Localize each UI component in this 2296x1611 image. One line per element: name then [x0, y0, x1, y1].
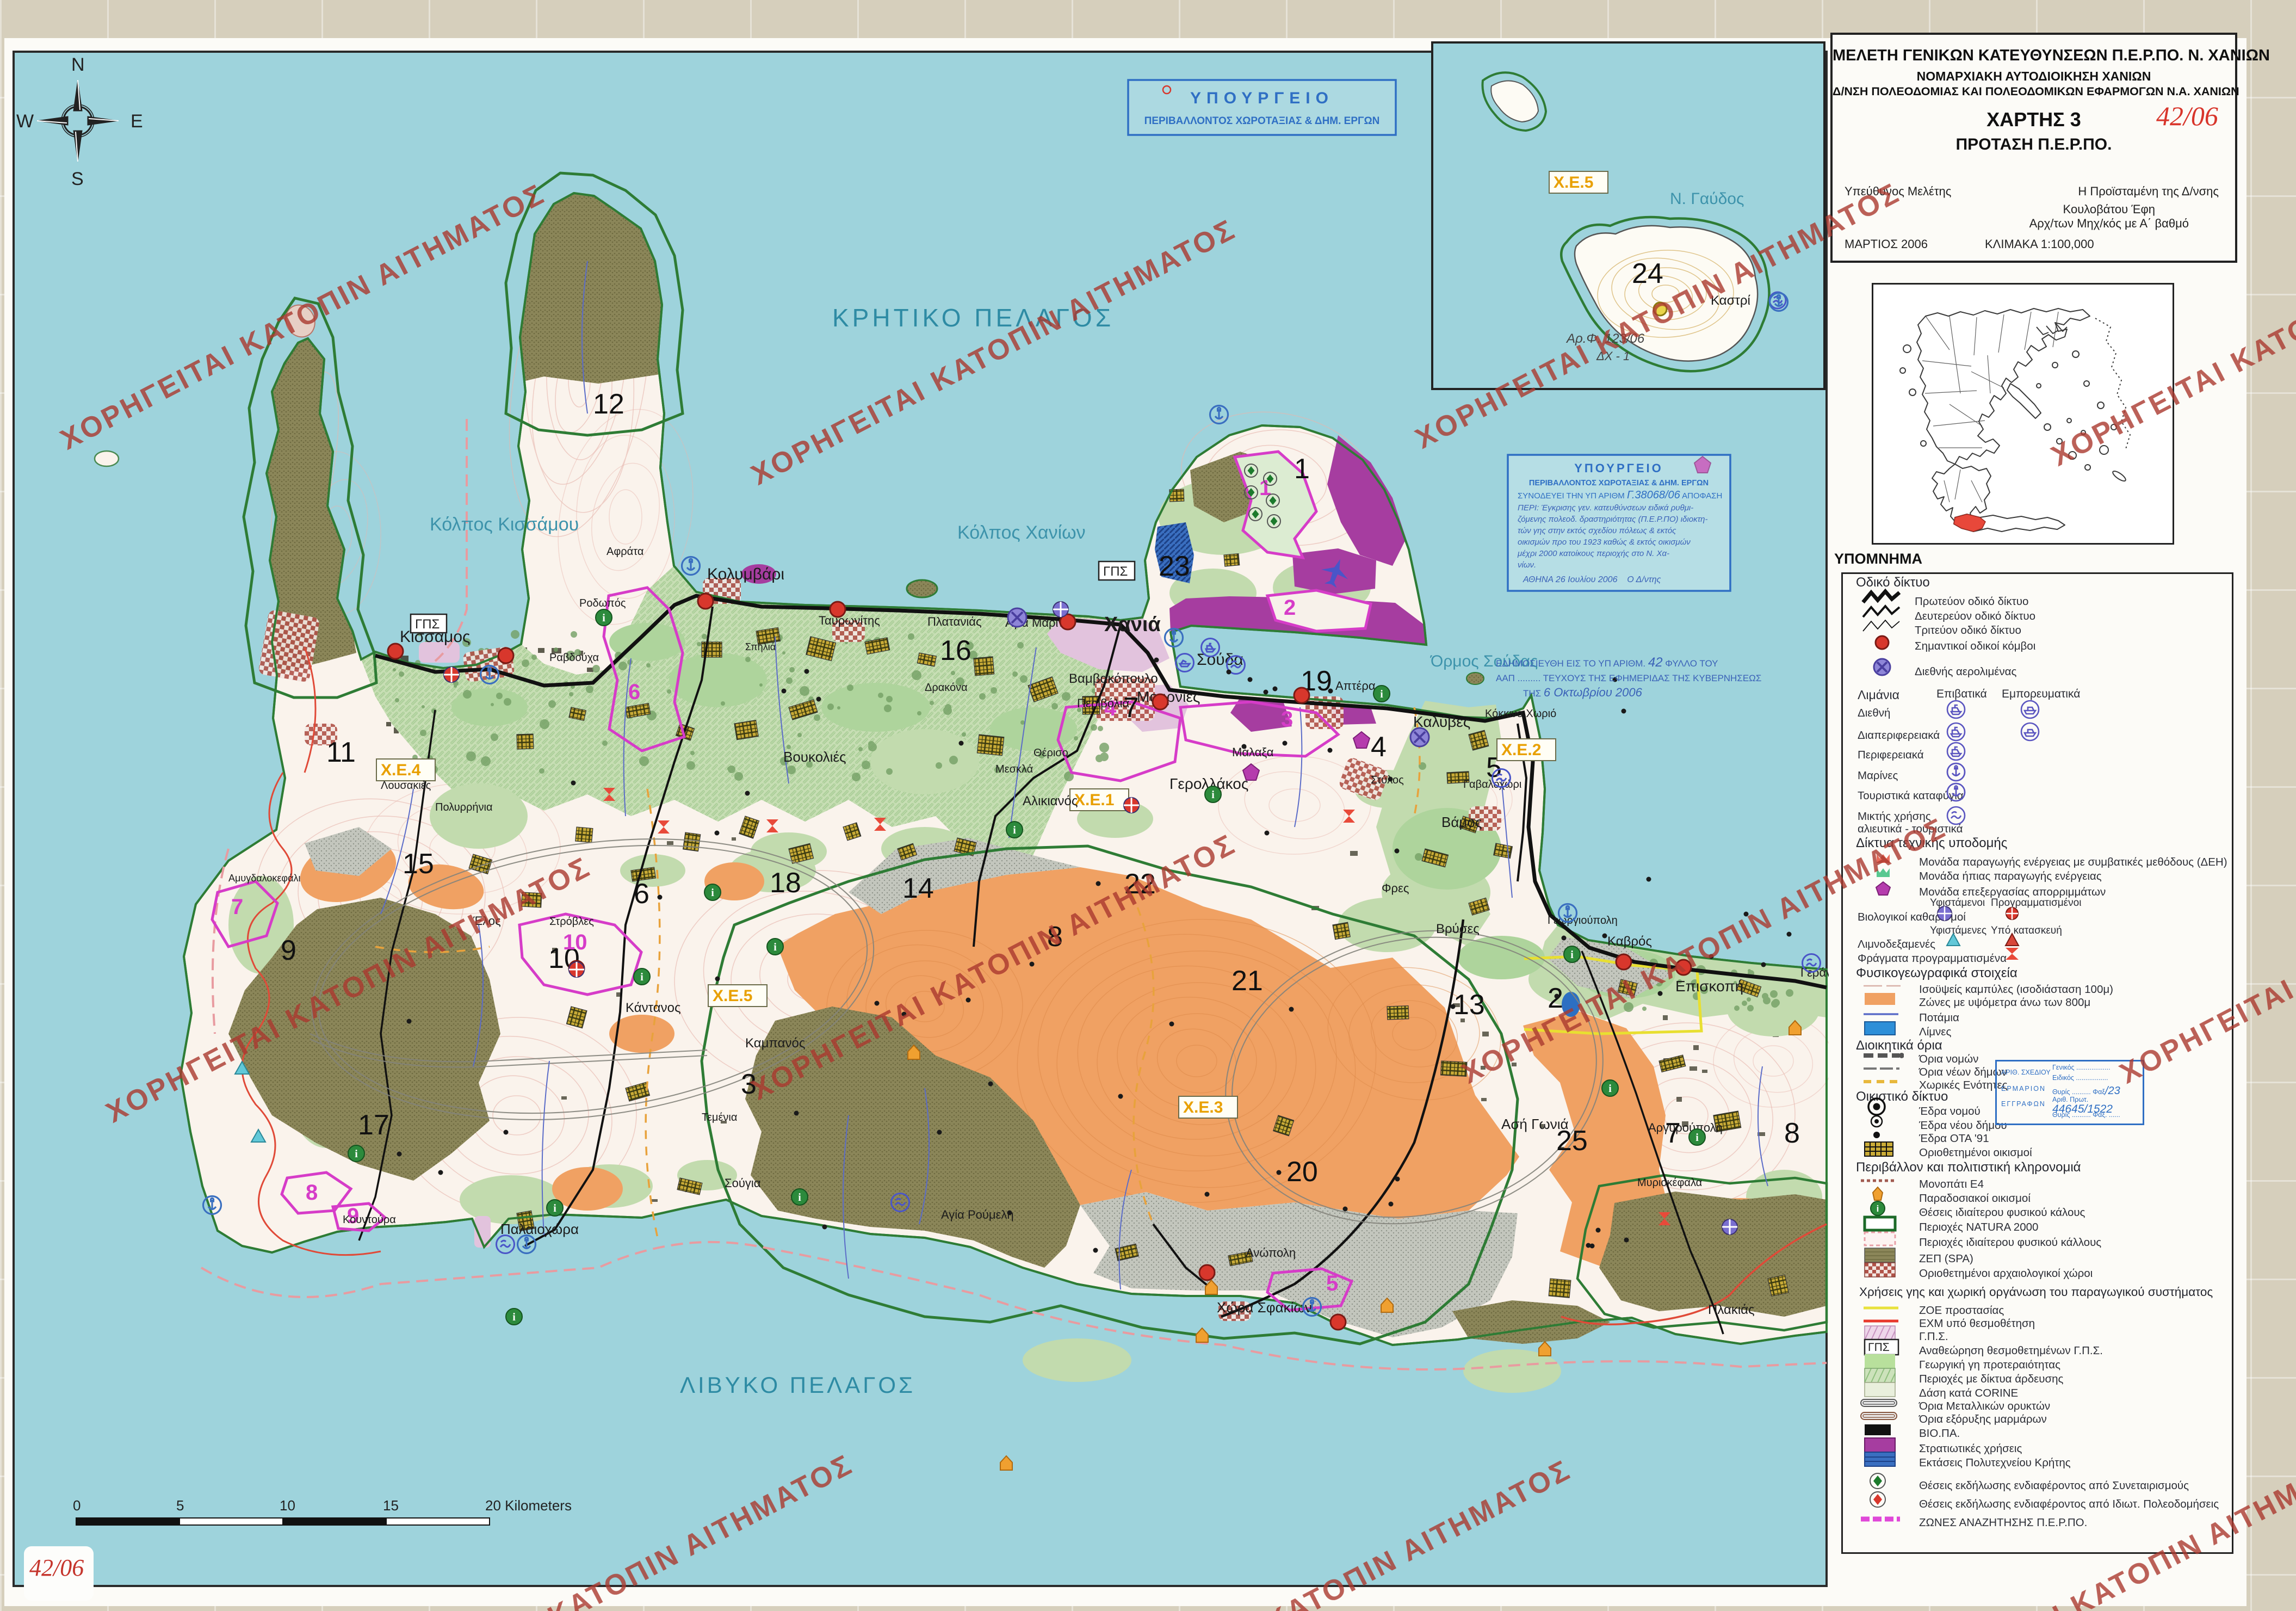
svg-text:7: 7: [231, 895, 243, 919]
svg-text:12: 12: [593, 388, 624, 420]
svg-text:ΓΠΣ: ΓΠΣ: [1103, 564, 1128, 579]
svg-text:Καβρός: Καβρός: [1607, 934, 1652, 949]
svg-text:Κουντούρα: Κουντούρα: [343, 1214, 396, 1226]
svg-text:X.E.5: X.E.5: [1554, 174, 1593, 192]
svg-text:ΥΠΟΥΡΓΕΙΟ: ΥΠΟΥΡΓΕΙΟ: [1190, 89, 1334, 107]
svg-text:Κόλπος Χανίων: Κόλπος Χανίων: [957, 522, 1086, 543]
svg-text:9: 9: [281, 935, 296, 966]
svg-text:Γεωργιούπολη: Γεωργιούπολη: [1548, 915, 1618, 927]
svg-text:Θέρισο: Θέρισο: [1033, 747, 1068, 759]
svg-text:i: i: [640, 971, 643, 983]
svg-text:Απτέρα: Απτέρα: [1335, 679, 1376, 693]
svg-text:11: 11: [326, 737, 356, 768]
svg-text:Περιβόλια: Περιβόλια: [1077, 696, 1129, 710]
svg-text:15: 15: [383, 1497, 399, 1514]
svg-text:ΑΑΠ ......... ΤΕΥΧΟΥΣ ΤΗΣ ΕΦΗΜ: ΑΑΠ ......... ΤΕΥΧΟΥΣ ΤΗΣ ΕΦΗΜΕΡΙΔΑΣ ΤΗΣ…: [1496, 673, 1761, 683]
svg-text:2: 2: [1284, 596, 1296, 620]
svg-text:Αφράτα: Αφράτα: [607, 546, 643, 558]
svg-text:i: i: [512, 1311, 516, 1323]
svg-text:Πολυρρήνια: Πολυρρήνια: [435, 801, 493, 813]
svg-text:ΠΕΡΙ: Έγκρισης γεν. κατευθύνσε: ΠΕΡΙ: Έγκρισης γεν. κατευθύνσεων ειδικά …: [1518, 503, 1693, 513]
svg-text:Κολυμβάρι: Κολυμβάρι: [707, 565, 784, 583]
svg-text:Πλατανιάς: Πλατανιάς: [927, 615, 982, 628]
svg-text:17: 17: [358, 1109, 389, 1141]
svg-text:Μυριοκέφαλα: Μυριοκέφαλα: [1637, 1177, 1702, 1189]
svg-text:15: 15: [403, 848, 434, 880]
svg-text:ΣΥΝΟΔΕΥΕΙ ΤΗΝ ΥΠ ΑΡΙΘΜ Γ.38068: ΣΥΝΟΔΕΥΕΙ ΤΗΝ ΥΠ ΑΡΙΘΜ Γ.38068/06 ΑΠΟΦΑΣ…: [1518, 489, 1722, 501]
svg-text:Μεσκλά: Μεσκλά: [995, 763, 1033, 775]
svg-text:6: 6: [634, 878, 649, 910]
svg-text:X.E.1: X.E.1: [1074, 791, 1114, 809]
svg-text:10: 10: [280, 1497, 295, 1514]
svg-text:Κόκκινο Χωριό: Κόκκινο Χωριό: [1485, 708, 1556, 720]
svg-text:Χανιά: Χανιά: [1104, 613, 1161, 636]
svg-text:18: 18: [770, 867, 801, 899]
svg-text:Επισκοπή: Επισκοπή: [1675, 978, 1743, 995]
svg-text:Βρύσες: Βρύσες: [1436, 922, 1480, 936]
svg-text:Αλικιανός: Αλικιανός: [1023, 794, 1078, 808]
svg-text:i: i: [1380, 688, 1383, 700]
svg-text:20: 20: [1286, 1156, 1318, 1188]
svg-text:i: i: [1877, 1203, 1879, 1214]
svg-text:i: i: [355, 1148, 358, 1160]
svg-text:Χώρα Σφακίων: Χώρα Σφακίων: [1217, 1299, 1312, 1316]
svg-text:i: i: [711, 887, 714, 899]
svg-text:Ταυρωνίτης: Ταυρωνίτης: [819, 614, 880, 627]
svg-text:i: i: [1570, 949, 1574, 961]
svg-text:i: i: [1211, 789, 1215, 801]
svg-text:Κάντανος: Κάντανος: [626, 1001, 681, 1015]
svg-text:20 Kilometers: 20 Kilometers: [485, 1497, 572, 1514]
svg-text:23: 23: [1159, 551, 1190, 582]
svg-text:8: 8: [306, 1181, 318, 1205]
svg-text:Καμπανός: Καμπανός: [745, 1036, 805, 1051]
svg-text:ΓΠΣ: ΓΠΣ: [415, 617, 440, 632]
svg-text:i: i: [1695, 1132, 1699, 1144]
svg-text:ζόμενης πολεοδ. δραστηριότητας: ζόμενης πολεοδ. δραστηριότητας (Π.Ε.Ρ.ΠΟ…: [1518, 515, 1708, 524]
svg-text:Κόλπος Κισσάμου: Κόλπος Κισσάμου: [430, 514, 579, 535]
svg-text:Λουσακιές: Λουσακιές: [381, 780, 431, 792]
svg-text:Αγία Ρούμελη: Αγία Ρούμελη: [941, 1208, 1014, 1221]
svg-text:Πλακιάς: Πλακιάς: [1708, 1303, 1755, 1317]
svg-text:10: 10: [563, 930, 587, 954]
svg-text:τών γης στην εκτός σχεδίου πόλ: τών γης στην εκτός σχεδίου πόλεως & εκτό…: [1518, 526, 1676, 535]
svg-text:νίων.: νίων.: [1518, 560, 1536, 570]
svg-text:ΠΕΡΙΒΑΛΛΟΝΤΟΣ ΧΩΡΟΤΑΞΙΑΣ & ΔΗΜ: ΠΕΡΙΒΑΛΛΟΝΤΟΣ ΧΩΡΟΤΑΞΙΑΣ & ΔΗΜ. ΕΡΓΩΝ: [1529, 479, 1709, 487]
svg-text:14: 14: [902, 873, 934, 904]
svg-text:ΥΠΟΥΡΓΕΙΟ: ΥΠΟΥΡΓΕΙΟ: [1574, 461, 1663, 475]
svg-text:16: 16: [940, 635, 971, 666]
svg-text:i: i: [1608, 1083, 1612, 1095]
svg-text:X.E.2: X.E.2: [1501, 741, 1541, 759]
svg-text:i: i: [1013, 824, 1016, 836]
svg-text:5: 5: [176, 1497, 184, 1514]
svg-text:i: i: [602, 612, 605, 624]
svg-text:1: 1: [1294, 453, 1310, 485]
svg-text:Ασή Γωνιά: Ασή Γωνιά: [1501, 1116, 1569, 1132]
svg-text:0: 0: [73, 1497, 81, 1514]
svg-text:i: i: [773, 941, 777, 953]
svg-text:3: 3: [1281, 707, 1293, 731]
svg-text:Ν. Γαύδος: Ν. Γαύδος: [1670, 190, 1744, 208]
svg-text:Δρακόνα: Δρακόνα: [925, 682, 968, 694]
svg-text:Βουκολιές: Βουκολιές: [783, 749, 846, 765]
svg-text:X.E.3: X.E.3: [1183, 1098, 1223, 1116]
svg-text:Τεμένια: Τεμένια: [702, 1112, 737, 1124]
svg-text:ΛΙΒΥΚΟ ΠΕΛΑΓΟΣ: ΛΙΒΥΚΟ ΠΕΛΑΓΟΣ: [680, 1372, 915, 1398]
svg-text:S: S: [71, 169, 84, 189]
svg-text:13: 13: [1453, 989, 1485, 1021]
svg-text:21: 21: [1231, 965, 1263, 997]
svg-text:οικισμών προ του 1923 καθώς &: οικισμών προ του 1923 καθώς & εκτός οικι…: [1518, 538, 1691, 547]
svg-text:E: E: [131, 111, 143, 132]
svg-text:N: N: [71, 54, 85, 75]
svg-text:8: 8: [1784, 1118, 1800, 1149]
svg-text:Αμυγδαλοκεφάλι: Αμυγδαλοκεφάλι: [228, 873, 301, 884]
svg-text:Βαμβακόπουλο: Βαμβακόπουλο: [1069, 671, 1158, 686]
svg-text:ΠΕΡΙΒΑΛΛΟΝΤΟΣ ΧΩΡΟΤΑΞΙΑΣ & ΔΗΜ: ΠΕΡΙΒΑΛΛΟΝΤΟΣ ΧΩΡΟΤΑΞΙΑΣ & ΔΗΜ. ΕΡΓΩΝ: [1144, 115, 1380, 127]
svg-text:Στύλος: Στύλος: [1371, 774, 1404, 786]
svg-text:X.E.5: X.E.5: [713, 987, 752, 1005]
svg-text:Ανώπολη: Ανώπολη: [1246, 1246, 1296, 1260]
svg-text:Σούγια: Σούγια: [725, 1176, 761, 1190]
svg-text:Ροδωπός: Ροδωπός: [579, 597, 626, 609]
svg-text:Παλαιοχώρα: Παλαιοχώρα: [500, 1221, 579, 1237]
svg-text:X.E.4: X.E.4: [381, 761, 421, 779]
svg-text:24: 24: [1632, 258, 1663, 289]
svg-text:W: W: [16, 111, 34, 132]
svg-text:Φρες: Φρες: [1382, 881, 1409, 895]
svg-text:ΑΘΗΝΑ 26 Ιουλίου 2006 Ο Δ/ν: ΑΘΗΝΑ 26 Ιουλίου 2006 Ο Δ/ντης: [1523, 575, 1661, 584]
svg-text:6: 6: [628, 680, 640, 704]
svg-text:Αργυρούπολη: Αργυρούπολη: [1648, 1121, 1723, 1134]
svg-text:4: 4: [1371, 731, 1387, 763]
svg-text:Σπηλιά: Σπηλιά: [745, 641, 776, 652]
svg-text:Βάμος: Βάμος: [1441, 814, 1482, 830]
svg-text:i: i: [798, 1192, 801, 1203]
svg-text:Στρόβλες: Στρόβλες: [549, 916, 594, 928]
svg-text:Ραβδούχα: Ραβδούχα: [549, 652, 599, 664]
svg-text:Μάλαξα: Μάλαξα: [1232, 745, 1274, 759]
svg-text:μέχρι 2000 κατοίκους περιοχής: μέχρι 2000 κατοίκους περιοχής στο Ν. Χα-: [1517, 549, 1669, 558]
svg-text:5: 5: [1326, 1271, 1338, 1295]
svg-text:i: i: [553, 1202, 556, 1214]
